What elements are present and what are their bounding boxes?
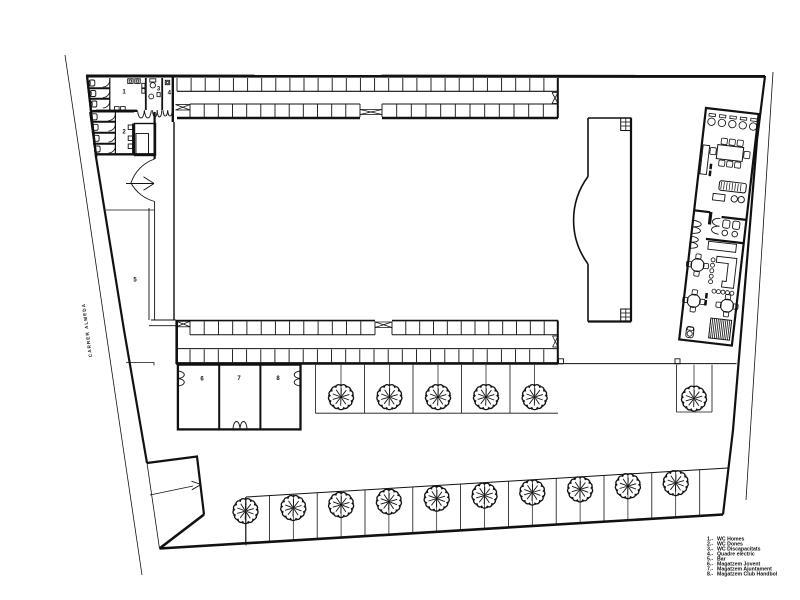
svg-text:8.-: 8.- xyxy=(707,572,713,578)
svg-text:Magatzem Club Handbol: Magatzem Club Handbol xyxy=(717,572,778,578)
